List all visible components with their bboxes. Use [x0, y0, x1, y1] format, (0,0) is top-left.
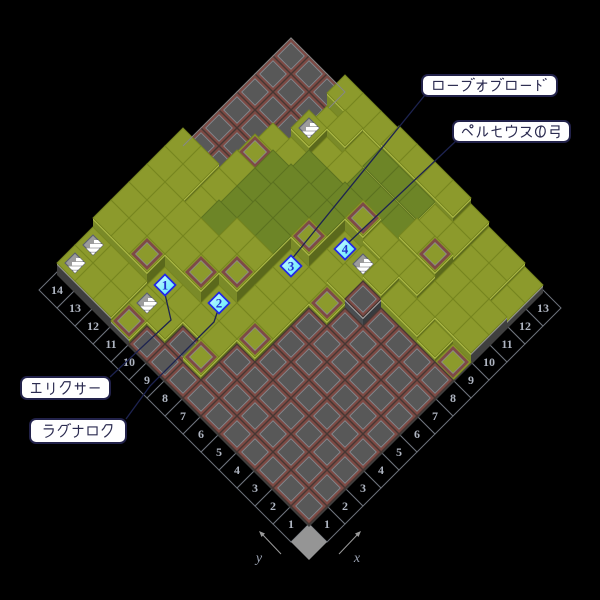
svg-text:4: 4 [378, 463, 384, 477]
svg-text:6: 6 [198, 427, 204, 441]
svg-text:13: 13 [537, 301, 549, 315]
svg-text:4: 4 [234, 463, 240, 477]
svg-text:11: 11 [501, 337, 512, 351]
svg-text:y: y [254, 551, 263, 566]
svg-text:1: 1 [324, 517, 330, 531]
svg-text:6: 6 [414, 427, 420, 441]
svg-text:1: 1 [288, 517, 294, 531]
svg-text:11: 11 [105, 337, 116, 351]
svg-text:9: 9 [468, 373, 474, 387]
svg-text:10: 10 [483, 355, 495, 369]
svg-text:14: 14 [51, 283, 63, 297]
svg-text:3: 3 [360, 481, 366, 495]
svg-text:5: 5 [216, 445, 222, 459]
svg-text:2: 2 [270, 499, 276, 513]
svg-text:12: 12 [87, 319, 99, 333]
svg-text:3: 3 [252, 481, 258, 495]
svg-text:4: 4 [342, 242, 349, 257]
svg-text:9: 9 [144, 373, 150, 387]
svg-text:2: 2 [342, 499, 348, 513]
svg-text:7: 7 [432, 409, 438, 423]
svg-text:13: 13 [69, 301, 81, 315]
svg-text:x: x [353, 551, 361, 566]
svg-text:12: 12 [519, 319, 531, 333]
svg-text:3: 3 [288, 259, 295, 274]
svg-text:5: 5 [396, 445, 402, 459]
svg-text:8: 8 [162, 391, 168, 405]
svg-text:7: 7 [180, 409, 186, 423]
svg-text:10: 10 [123, 355, 135, 369]
svg-text:8: 8 [450, 391, 456, 405]
svg-text:2: 2 [216, 296, 223, 311]
svg-text:1: 1 [162, 278, 169, 293]
